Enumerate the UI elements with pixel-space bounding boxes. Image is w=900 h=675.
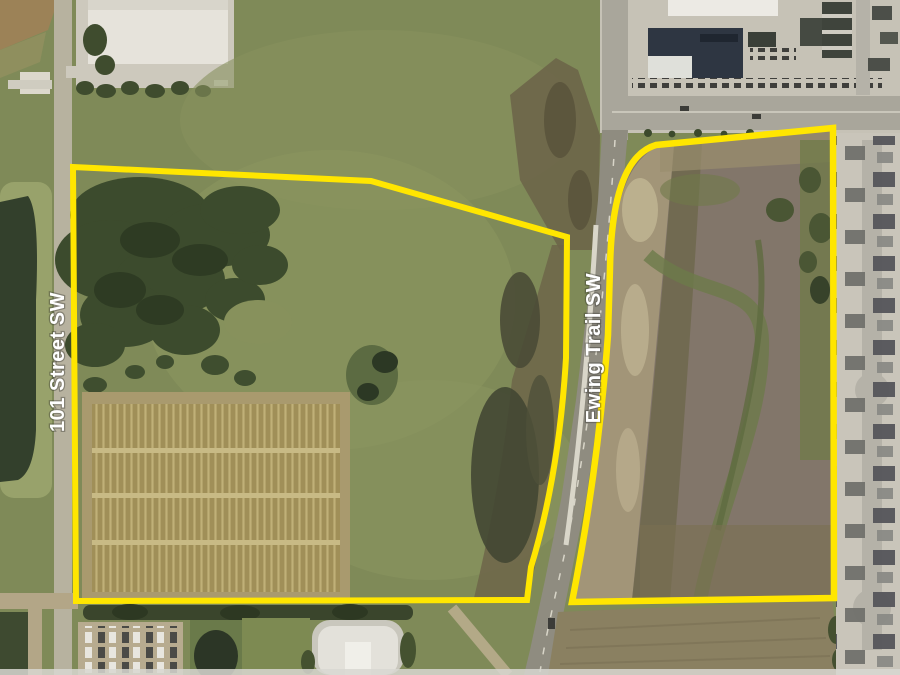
street-label-ewing: Ewing Trail SW <box>583 273 605 423</box>
aerial-imagery: 101 Street SW Ewing Trail SW <box>0 0 900 675</box>
aerial-map: 101 Street SW Ewing Trail SW <box>0 0 900 675</box>
dome-building <box>301 620 416 675</box>
crop-field <box>82 392 350 598</box>
pond-south-center <box>190 620 245 675</box>
residential-area <box>836 133 900 675</box>
small-building <box>748 32 776 47</box>
plaza-building <box>822 2 852 58</box>
street-label-101: 101 Street SW <box>47 292 69 432</box>
south-parking-lot <box>78 622 183 675</box>
parking-lot-cars <box>750 48 796 60</box>
parking-lot-cars <box>632 78 882 92</box>
strip-mall-building <box>648 28 743 78</box>
photo-edge-strip <box>0 669 900 675</box>
pond-west <box>0 182 52 498</box>
sports-field <box>242 618 310 675</box>
pond-southwest <box>0 612 28 675</box>
tree-pond-cluster <box>346 345 398 405</box>
white-building <box>668 0 778 16</box>
